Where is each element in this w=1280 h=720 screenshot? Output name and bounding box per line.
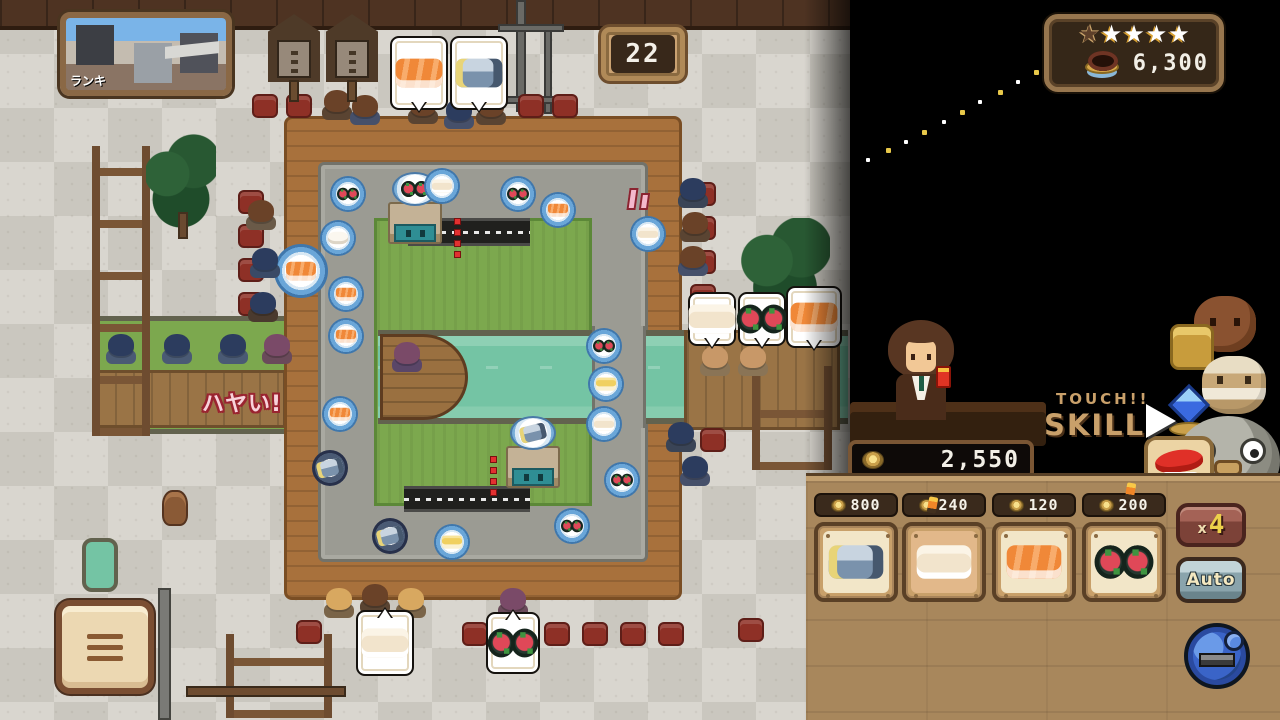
ika-sushi-icon: [362, 629, 409, 658]
salmon-sushi-icon: [396, 59, 443, 88]
coin-sparkle: [960, 110, 965, 115]
belt-plate-maki[interactable]: [330, 176, 366, 212]
alert-dot: [490, 478, 497, 485]
alert-dot: [490, 456, 497, 463]
salmon-sushi-icon: [286, 262, 316, 280]
star-light: ★: [1123, 21, 1145, 47]
belt-plate-saba[interactable]: [372, 518, 408, 554]
price-value: 240: [938, 496, 968, 514]
stool: [700, 428, 726, 452]
skill-cursor-icon: [1146, 404, 1176, 438]
shop-item-salmon: 120: [992, 493, 1076, 602]
dispenser-eye: [538, 474, 543, 481]
maki-piece: [621, 474, 633, 486]
auto-button[interactable]: Auto: [1176, 557, 1246, 603]
salmon-sushi-icon: [1007, 545, 1062, 579]
stool: [658, 622, 684, 646]
customer-head: [252, 248, 278, 270]
customer: [678, 246, 708, 278]
order-bubble-ika: [356, 610, 414, 676]
customer: [666, 422, 696, 454]
buy-saba-button[interactable]: [814, 522, 898, 602]
maki-sushi-icon: [594, 340, 614, 352]
customer: [678, 178, 708, 210]
customer: [248, 292, 278, 324]
customer-head: [248, 200, 274, 222]
belt-plate-salmon[interactable]: [322, 396, 358, 432]
maki-piece: [347, 188, 359, 200]
maki-sushi-icon: [562, 520, 582, 532]
stool: [462, 622, 488, 646]
bread-skill-icon[interactable]: [1170, 324, 1214, 370]
maki-sushi-icon: [739, 305, 786, 334]
skill-label: SKILL: [1044, 408, 1145, 442]
multiplier-x: x: [1198, 521, 1207, 537]
metal-pole: [158, 588, 171, 720]
sign-board: [335, 40, 369, 78]
maki-sushi-icon: [338, 188, 358, 200]
coin-sparkle: [1016, 80, 1020, 84]
alert-dot: [454, 251, 461, 258]
customer: [218, 334, 248, 366]
coin-sparkle: [922, 130, 927, 135]
speed-clock-button[interactable]: [1184, 623, 1250, 689]
maki-piece: [517, 188, 529, 200]
coin-stack-icon: [1085, 48, 1123, 78]
customer-head: [108, 334, 134, 356]
stool: [552, 94, 578, 118]
price-tag: 800: [814, 493, 898, 517]
restaurant-scene: ハヤい! ランキ 22: [0, 0, 850, 720]
game-screen: ハヤい! ランキ 22 ★★★★★ 6,300 2,550: [0, 0, 1280, 720]
puffer-eye: [1240, 438, 1266, 464]
wooden-sign: [268, 14, 320, 104]
buy-salmon-button[interactable]: [992, 522, 1076, 602]
hamburger-icon: [87, 634, 123, 639]
maki-sushi-icon: [1097, 545, 1152, 579]
belt-plate-maki[interactable]: [554, 508, 590, 544]
stool: [738, 618, 764, 642]
maki-piece: [511, 629, 538, 658]
shop-item-ika: 240: [902, 493, 986, 602]
coin-sparkle: [998, 90, 1003, 95]
order-bubble-saba: [450, 36, 508, 110]
maki-sushi-icon: [508, 188, 528, 200]
belt-plate-ika[interactable]: [586, 406, 622, 442]
tree-trunk: [178, 212, 188, 239]
sign-board: [277, 40, 311, 78]
coin-sparkle: [866, 158, 870, 162]
customer: [250, 248, 280, 280]
coin-sparkle: [904, 140, 908, 144]
belt-plate-salmon[interactable]: [540, 192, 576, 228]
belt-plate-salmon[interactable]: [328, 276, 364, 312]
multiplier-button[interactable]: x 4: [1176, 503, 1246, 547]
coin-icon: [1009, 499, 1024, 512]
stool: [296, 620, 322, 644]
belt-plate-tamago[interactable]: [588, 366, 624, 402]
wooden-sign: [326, 14, 378, 104]
maki-sushi-icon: [612, 474, 632, 486]
ranking-label: ランキ: [70, 72, 106, 89]
order-bubble-salmon: [786, 286, 842, 348]
maki-sushi-icon: [490, 629, 537, 658]
hanging-rail-bar: [498, 24, 564, 32]
belt-plate-maki[interactable]: [500, 176, 536, 212]
dispenser-face: [512, 468, 554, 486]
chef-character[interactable]: [884, 320, 958, 420]
customer: [324, 588, 354, 620]
customer-head: [394, 342, 420, 364]
trellis-deck: [752, 366, 832, 470]
saba-sushi-icon: [375, 525, 404, 547]
salmon-sushi-icon: [330, 408, 350, 420]
dispenser-eye: [420, 230, 425, 237]
belt-plate-ika[interactable]: [630, 216, 666, 252]
stool: [620, 622, 646, 646]
belt-plate-maki[interactable]: [604, 462, 640, 498]
saba-sushi-icon: [456, 59, 503, 88]
coin-sparkle: [886, 148, 891, 153]
alert-dot: [454, 229, 461, 236]
customer-head: [250, 292, 276, 314]
salmon-sushi-icon: [336, 288, 356, 300]
coin-sparkle: [978, 100, 982, 104]
saba-sushi-icon: [315, 457, 344, 479]
coin-icon: [1099, 499, 1114, 512]
belt-plate-saba[interactable]: [312, 450, 348, 486]
maki-piece: [760, 305, 787, 334]
price-value: 120: [1028, 496, 1058, 514]
maki-piece: [603, 340, 615, 352]
impatience-text: ハヤい!: [202, 386, 282, 418]
order-counter-frame: 22: [598, 24, 688, 84]
customer-head: [398, 588, 424, 610]
menu-button[interactable]: [56, 600, 154, 694]
clock-knob: [1224, 631, 1244, 651]
tamago-sushi-icon: [596, 378, 616, 390]
tamago-sushi-icon: [442, 536, 462, 548]
buy-tuna-maki-button[interactable]: [1082, 522, 1166, 602]
customer-head: [680, 178, 706, 200]
trellis-bottom: [226, 634, 332, 718]
order-bubble-ika: [688, 292, 736, 346]
customer: [680, 456, 710, 488]
chef-fringe: [900, 332, 942, 343]
coin-icon: [831, 499, 846, 512]
customer-head: [668, 422, 694, 444]
auto-label: Auto: [1186, 570, 1235, 590]
ika-sushi-icon: [432, 180, 452, 192]
star-dark: ★: [1078, 21, 1100, 47]
customer-head: [164, 334, 190, 356]
plant-pot: [162, 490, 188, 526]
belt-plate-ika[interactable]: [424, 168, 460, 204]
ranking-photo-button[interactable]: ランキ: [60, 12, 232, 96]
chef-order-card: [936, 366, 951, 388]
customer-head: [326, 588, 352, 610]
chef-face: [906, 340, 936, 372]
order-bubble-maki: [486, 612, 540, 674]
multiplier-value: 4: [1209, 507, 1225, 543]
customer: [162, 334, 192, 366]
shop-panel: 800 240 120 200 x 4: [806, 476, 1280, 720]
customer-head: [220, 334, 246, 356]
dispenser-eye: [406, 230, 411, 237]
star-light: ★: [1168, 21, 1190, 47]
alert-dot: [490, 489, 497, 496]
price-tag: 120: [992, 493, 1076, 517]
wallet-bar: 2,550: [848, 440, 1034, 480]
belt-plate-maki[interactable]: [586, 328, 622, 364]
ika-sushi-icon: [689, 305, 736, 334]
alert-dot: [490, 467, 497, 474]
alert-dot: [454, 218, 461, 225]
salmon-sushi-icon: [336, 330, 356, 342]
star-rating: ★★★★★: [1059, 21, 1209, 47]
dispenser-face: [394, 224, 436, 242]
stool: [582, 622, 608, 646]
customer: [246, 200, 276, 232]
customer-head: [682, 456, 708, 478]
customer-head: [682, 212, 708, 234]
coin-sparkle: [1034, 70, 1039, 75]
coin-sparkle: [942, 120, 946, 124]
puffer-beak: [1214, 460, 1242, 476]
total-money: 6,300: [1133, 51, 1209, 76]
belt-plate-salmon[interactable]: [274, 244, 328, 298]
customer-head: [680, 246, 706, 268]
wallet-amount: 2,550: [884, 447, 1020, 473]
rice-sushi-icon: [328, 232, 348, 244]
customer: [392, 342, 422, 374]
stool: [544, 622, 570, 646]
maki-piece: [1122, 545, 1154, 579]
alert-dot: [454, 240, 461, 247]
score-panel: ★★★★★ 6,300: [1044, 14, 1224, 92]
star-light: ★: [1146, 21, 1168, 47]
wood-pole: [186, 686, 346, 697]
order-bubble-salmon: [390, 36, 448, 110]
star-light: ★: [1101, 21, 1123, 47]
impatience-icon: [628, 188, 652, 214]
chef-tie: [919, 376, 924, 391]
belt-plate-tamago[interactable]: [434, 524, 470, 560]
order-counter-value: 22: [611, 35, 675, 73]
customer: [262, 334, 292, 366]
shop-item-tuna-maki: 200: [1082, 493, 1166, 602]
belt-plate-rice[interactable]: [320, 220, 356, 256]
touch-label: TOUCH!!: [1056, 390, 1149, 408]
salmon-sushi-icon: [791, 303, 838, 332]
customer-head: [264, 334, 290, 356]
belt-plate-salmon[interactable]: [328, 318, 364, 354]
sign-post: [347, 80, 357, 102]
order-bubble-maki: [738, 292, 786, 346]
clock-slot: [1199, 653, 1235, 667]
ika-sushi-icon: [638, 228, 658, 240]
saba-sushi-icon: [518, 422, 547, 444]
saba-sushi-icon: [829, 545, 884, 579]
price-value: 800: [850, 496, 880, 514]
customer: [680, 212, 710, 244]
dispenser-plate: [510, 416, 556, 450]
stool: [518, 94, 544, 118]
score-money-row: 6,300: [1059, 48, 1209, 78]
customer: [106, 334, 136, 366]
pond: [82, 538, 118, 592]
sushi-dispenser[interactable]: [504, 422, 564, 510]
buy-ika-button[interactable]: [902, 522, 986, 602]
salmon-sushi-icon: [548, 204, 568, 216]
coin-icon: [862, 451, 884, 469]
tree-left: [146, 134, 216, 239]
maki-piece: [571, 520, 583, 532]
price-tag: 240: [902, 493, 986, 517]
dispenser-eye: [524, 474, 529, 481]
sign-post: [289, 80, 299, 102]
shop-item-saba: 800: [814, 493, 898, 602]
ika-sushi-icon: [594, 418, 614, 430]
trellis-left: [92, 146, 150, 436]
ika-sushi-icon: [917, 545, 972, 579]
